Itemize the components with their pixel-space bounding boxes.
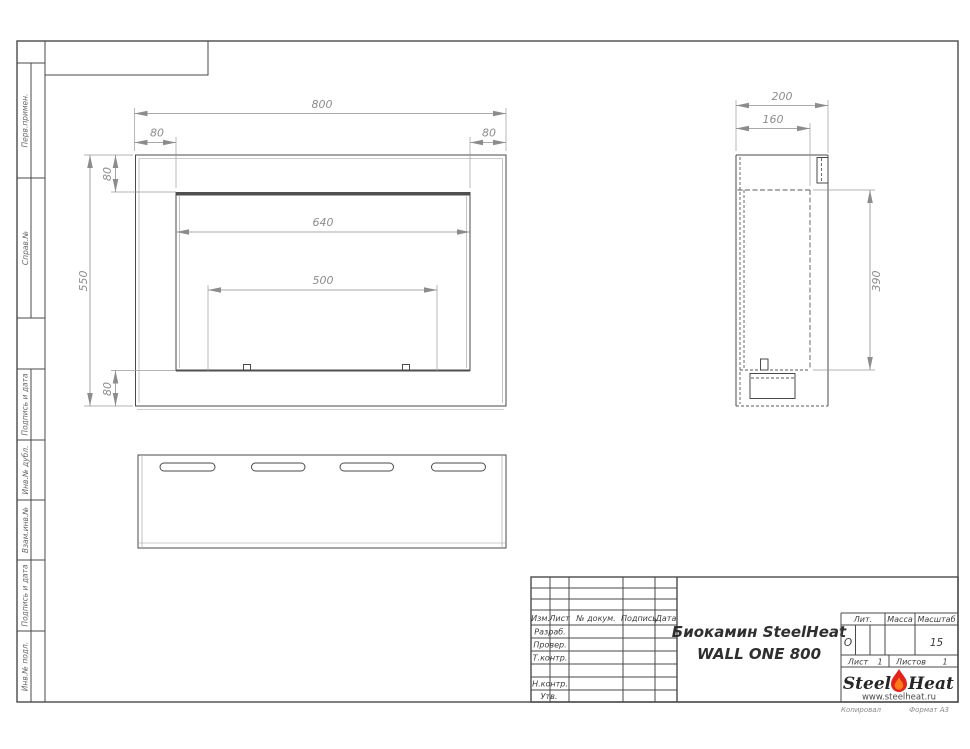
side-view-dimensions: 200 160 390 [736, 90, 883, 370]
logo-site: www.steelheat.ru [862, 693, 936, 703]
scale-value: 15 [930, 637, 944, 649]
dim-front-margin-left: 80 [150, 127, 164, 140]
burner-tab-side [761, 359, 769, 370]
col-sign: Подпись [621, 614, 657, 623]
front-view-dimensions: 800 80 80 550 80 80 640 500 [77, 98, 506, 406]
sheet-value: 1 [877, 658, 882, 667]
sidebar-label-inv-dubl: Инв.№ дубл. [21, 446, 30, 495]
row-nkontr: Н.контр. [532, 680, 568, 689]
frame-footer: Копировал Формат А3 [841, 706, 949, 714]
dim-front-margin-right: 80 [482, 127, 496, 140]
vent-slots [160, 463, 486, 471]
dim-front-width: 800 [312, 98, 333, 111]
side-view [736, 155, 828, 406]
footer-format: Формат А3 [909, 706, 949, 714]
sidebar-label-sprav-no: Справ.№ [21, 231, 30, 265]
sidebar-column: Перв.примен. Справ.№ Подпись и дата Инв.… [17, 63, 45, 702]
top-left-stamp-box [45, 41, 208, 75]
drawing-sheet: Перв.примен. Справ.№ Подпись и дата Инв.… [0, 0, 970, 749]
sheet-frame [17, 41, 958, 702]
lit-label: Лит. [853, 615, 872, 624]
col-doc: № докум. [575, 614, 615, 623]
dim-front-opening-width: 640 [313, 216, 334, 229]
opening-top-edge [176, 192, 470, 196]
sheet-label: Лист [847, 658, 869, 667]
mass-label: Масса [887, 615, 913, 624]
row-razrab: Разраб. [534, 628, 565, 637]
bottom-view [138, 455, 506, 548]
steelheat-logo: Steel Heat www.steelheat.ru [843, 669, 954, 703]
logo-heat: Heat [907, 674, 954, 694]
sidebar-label-inv-podl: Инв.№ подл. [21, 642, 30, 691]
logo-steel: Steel [843, 674, 892, 694]
dim-front-margin-top: 80 [101, 167, 114, 181]
dim-front-burner-width: 500 [313, 274, 334, 287]
footer-copy: Копировал [841, 706, 882, 714]
sidebar-label-perv-primen: Перв.примен. [21, 94, 30, 148]
sidebar-label-podpis-data-2: Подпись и дата [21, 564, 30, 627]
dim-side-inner-depth: 160 [763, 113, 784, 126]
doc-title-line2: WALL ONE 800 [697, 645, 821, 663]
dim-front-margin-bottom: 80 [101, 382, 114, 396]
sidebar-label-podpis-data-1: Подпись и дата [21, 373, 30, 436]
row-utv: Утв. [541, 692, 558, 701]
flame-icon [891, 669, 907, 692]
col-list: Лист [548, 614, 570, 623]
sidebar-label-vzam-inv: Взам.инв.№ [21, 507, 30, 553]
sheets-value: 1 [942, 658, 947, 667]
title-block: Изм. Лист № докум. Подпись Дата Разраб. … [531, 577, 958, 703]
dim-side-depth: 200 [772, 90, 793, 103]
sheets-label: Листов [895, 658, 926, 667]
lit-value: О [844, 637, 852, 649]
drawing-canvas: Перв.примен. Справ.№ Подпись и дата Инв.… [0, 0, 970, 749]
burner-box [750, 374, 795, 399]
col-date: Дата [655, 614, 677, 623]
dim-front-height: 550 [77, 271, 90, 292]
mount-flange [817, 158, 828, 184]
col-izm: Изм. [531, 614, 550, 623]
doc-title-line1: Биокамин SteelHeat [672, 623, 847, 641]
dim-side-opening-height: 390 [870, 271, 883, 292]
row-tkontr: Т.контр. [533, 654, 568, 663]
row-prover: Провер. [533, 641, 566, 650]
scale-label: Масштаб [917, 615, 955, 624]
